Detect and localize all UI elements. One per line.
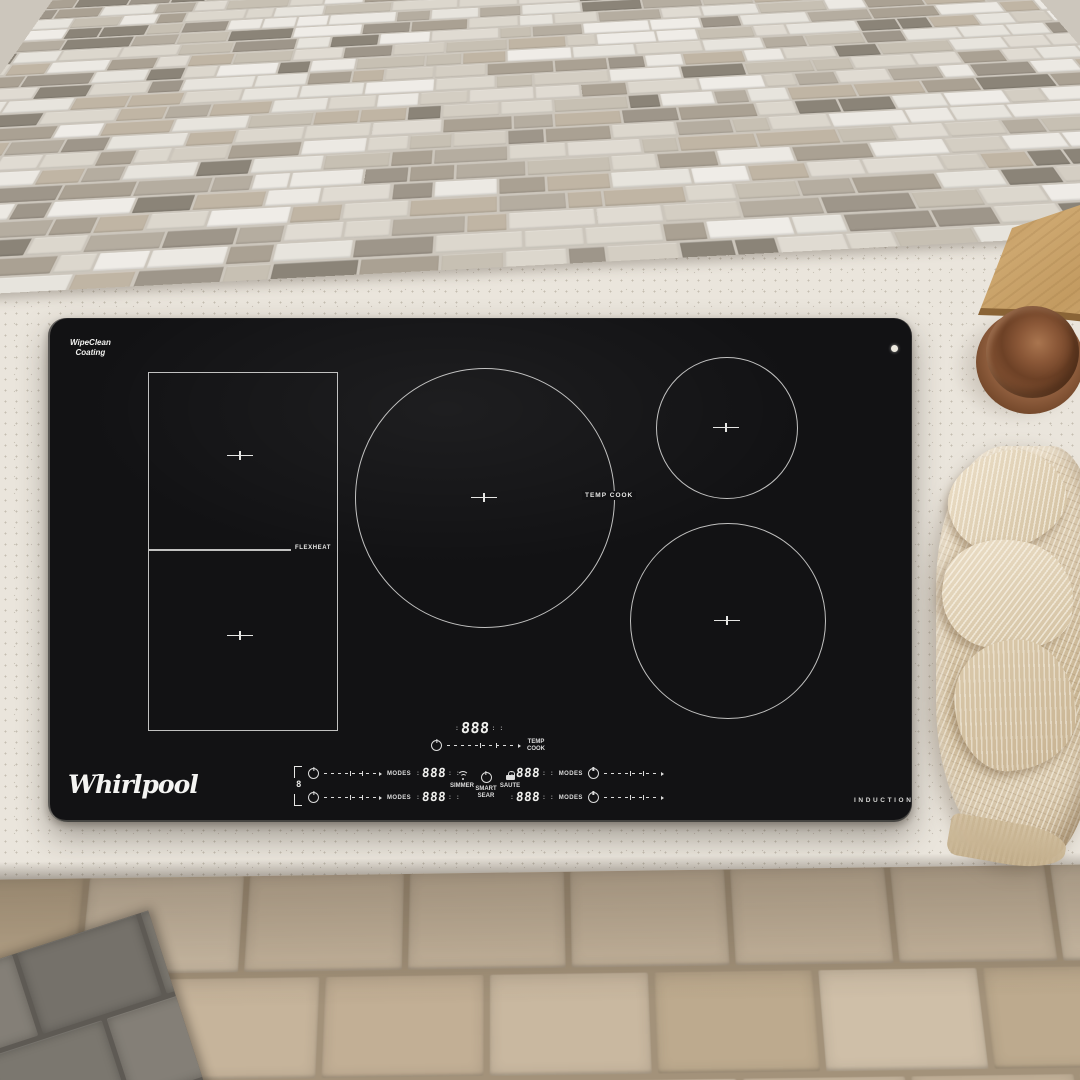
right-rear-burner-controls: : 888 : : MODES (510, 767, 664, 780)
led-display: 888 (515, 791, 540, 804)
display-mark: : : (542, 770, 554, 777)
tile (81, 166, 126, 182)
tile (957, 50, 1007, 63)
display-mark: : (416, 770, 420, 777)
display-mark: : (455, 725, 459, 732)
power-icon[interactable] (588, 792, 599, 803)
tile (717, 147, 795, 165)
tile (1001, 48, 1042, 61)
tile (377, 93, 419, 107)
tile (434, 179, 496, 197)
tile (210, 175, 253, 192)
tile (821, 192, 916, 213)
power-indicator-dot (891, 345, 898, 352)
led-display: 888 (421, 767, 446, 780)
button-label: SMART SEAR (475, 786, 496, 799)
tile (133, 177, 213, 196)
induction-cooktop: WipeClean Coating FLEXHEAT TEMP COOK : 8… (48, 318, 912, 822)
tile (367, 136, 408, 152)
tile (235, 225, 284, 244)
tile (165, 104, 211, 118)
tile (499, 192, 566, 211)
tile (93, 214, 149, 233)
tile (434, 146, 507, 164)
tile (290, 204, 343, 223)
tile (119, 14, 159, 25)
tile (944, 136, 1008, 153)
tile (185, 130, 236, 146)
tile (585, 224, 663, 245)
tile (289, 169, 364, 188)
tile (975, 13, 1016, 25)
tile (60, 137, 110, 153)
tile (502, 100, 553, 115)
modes-button[interactable]: MODES (387, 795, 411, 801)
tile (788, 84, 857, 100)
tile (343, 201, 409, 220)
bridge-display: 8 (296, 780, 301, 790)
tile (862, 156, 945, 175)
tile (426, 53, 461, 66)
tile (324, 152, 391, 170)
tile (546, 125, 612, 142)
tile (555, 110, 622, 126)
tile (442, 103, 499, 118)
tile (392, 182, 433, 199)
wooden-bowl (986, 306, 1079, 398)
tile (567, 34, 597, 46)
tile (656, 29, 698, 41)
tile (26, 235, 89, 255)
tile (1003, 35, 1053, 48)
tile (116, 106, 168, 121)
power-slider[interactable] (604, 793, 664, 802)
tile (912, 52, 962, 65)
tile (196, 159, 252, 176)
tile (870, 139, 950, 157)
tile (887, 66, 944, 80)
tile (250, 156, 324, 174)
badge-line2: Coating (70, 348, 111, 358)
tile (611, 169, 692, 188)
tile (795, 71, 839, 85)
tile (657, 151, 718, 168)
tile (454, 131, 506, 147)
burner-center-marker (714, 616, 740, 625)
display-mark: : : (492, 725, 504, 732)
flex-zone-divider (149, 549, 291, 551)
tile (928, 15, 980, 27)
tile (547, 173, 611, 191)
tile (194, 1, 228, 12)
tile (0, 256, 58, 277)
tile (581, 82, 627, 96)
tile (1005, 23, 1051, 35)
tile (343, 45, 392, 58)
flex-zone-outline (148, 372, 338, 731)
tile (1030, 59, 1080, 73)
tile (271, 98, 328, 113)
tile (146, 68, 186, 81)
tile (328, 95, 377, 110)
tile (791, 215, 847, 235)
tile (608, 56, 645, 69)
temp-cook-button[interactable]: TEMP COOK (526, 739, 546, 753)
tile (4, 139, 65, 155)
tile (145, 211, 209, 230)
tile (188, 53, 235, 66)
tile (468, 213, 507, 232)
tile (678, 133, 757, 151)
tile (603, 186, 686, 206)
tile (508, 129, 544, 144)
tile (706, 217, 794, 238)
tile (95, 150, 137, 166)
led-display: 888 (460, 721, 490, 736)
modes-button[interactable]: MODES (387, 771, 411, 777)
tile (252, 173, 291, 190)
tile (301, 138, 367, 155)
tile (970, 61, 1036, 76)
simmer-button[interactable]: SIMMER (452, 771, 472, 799)
tile (949, 37, 1009, 50)
led-display: 888 (421, 791, 446, 804)
tile (748, 163, 810, 181)
tile (35, 168, 86, 185)
tile (397, 10, 431, 21)
tile (743, 49, 785, 62)
tile (457, 161, 525, 179)
tile (93, 251, 151, 271)
tile (753, 25, 788, 37)
tile (768, 114, 832, 130)
tile (783, 46, 837, 59)
tile (596, 205, 663, 225)
burner-center-marker (713, 423, 739, 432)
burner-center-marker (227, 451, 253, 460)
tile (192, 191, 266, 210)
burner-display: : 888 : : (510, 791, 554, 804)
badge-line1: WipeClean (70, 338, 111, 348)
tile (661, 7, 702, 19)
tile (611, 154, 658, 171)
tile (0, 219, 53, 238)
left-front-burner-controls: MODES : 888 : : (308, 767, 460, 780)
tile (834, 44, 881, 57)
led-display: 888 (515, 767, 540, 780)
tile (304, 123, 371, 139)
tile (171, 116, 249, 133)
tile (980, 151, 1034, 168)
tile (944, 120, 1007, 136)
tile (359, 107, 406, 122)
tile (525, 228, 585, 248)
tile (156, 13, 186, 24)
tile (797, 178, 855, 196)
burner-display: : 888 : : (510, 767, 554, 780)
tile (950, 105, 1013, 121)
tile (132, 195, 195, 214)
power-slider[interactable] (604, 769, 664, 778)
tile (391, 150, 433, 166)
tile (364, 167, 408, 184)
tile (133, 148, 172, 164)
tile (892, 123, 949, 139)
tile (748, 88, 790, 102)
power-icon (481, 772, 492, 783)
burner-center-marker (471, 493, 497, 502)
tile (169, 145, 230, 162)
tile (536, 85, 581, 99)
wifi-icon (456, 771, 468, 780)
tile (161, 227, 237, 248)
tile (510, 143, 567, 160)
tile (53, 123, 105, 138)
tile (265, 188, 322, 206)
tile (353, 236, 434, 258)
tile (567, 139, 642, 157)
modes-button[interactable]: MODES (559, 771, 583, 777)
temp-cook-slider-row: TEMP COOK (431, 739, 546, 752)
tile (554, 12, 597, 24)
tile (58, 181, 137, 200)
tile (245, 8, 274, 19)
tile (794, 99, 841, 114)
button-label: SIMMER (450, 783, 474, 790)
tile (283, 222, 344, 242)
tile (700, 16, 741, 28)
tile (241, 86, 300, 101)
tile (38, 152, 99, 169)
tile (931, 207, 1001, 227)
tile (147, 247, 228, 269)
tile (837, 126, 897, 142)
display-mark: : (510, 770, 514, 777)
flex-bridge-indicator: 8 (294, 766, 305, 806)
tile (254, 73, 308, 87)
left-rear-burner-controls: MODES : 888 : : (308, 791, 460, 804)
right-front-burner-controls: : 888 : : MODES (510, 791, 664, 804)
tile (939, 64, 976, 77)
tile (732, 117, 771, 132)
tile (0, 185, 63, 204)
tile (939, 154, 987, 171)
brand-logo: Whirlpool (68, 770, 198, 799)
tile (837, 96, 896, 111)
tile (999, 0, 1040, 11)
power-icon[interactable] (308, 792, 319, 803)
tile (1010, 11, 1052, 23)
kitchen-scene: WipeClean Coating FLEXHEAT TEMP COOK : 8… (0, 0, 1080, 1080)
tile (1034, 0, 1073, 10)
tile (892, 93, 949, 108)
tile (296, 37, 331, 49)
tile (806, 160, 865, 178)
power-slider[interactable] (324, 793, 382, 802)
tile (6, 63, 51, 76)
power-slider[interactable] (324, 769, 382, 778)
tile (755, 101, 797, 116)
tile (262, 17, 297, 28)
display-mark: : (416, 794, 420, 801)
tile (1006, 101, 1080, 118)
display-mark: : : (542, 794, 554, 801)
tile (227, 19, 263, 30)
tile (419, 91, 467, 106)
temp-cook-control-group: : 888 : : TEMP COOK (431, 721, 546, 752)
tile (0, 170, 40, 187)
tile (835, 69, 891, 83)
power-icon[interactable] (588, 768, 599, 779)
tile (385, 67, 434, 81)
tile (480, 6, 521, 18)
tile (344, 219, 391, 238)
power-icon[interactable] (431, 740, 442, 751)
tile (520, 14, 553, 25)
tile (825, 0, 867, 10)
tile (660, 91, 715, 106)
tile (392, 216, 465, 236)
tile (183, 66, 218, 79)
tile (896, 17, 932, 29)
power-icon[interactable] (308, 768, 319, 779)
tile (52, 254, 98, 274)
tile (676, 119, 733, 135)
tile (763, 74, 797, 87)
tile (409, 134, 451, 150)
induction-label: INDUCTION (854, 797, 914, 804)
tile (273, 240, 353, 262)
tile (921, 78, 982, 93)
tile (714, 90, 749, 104)
tile (844, 210, 937, 231)
tile (1041, 84, 1080, 100)
tile (1002, 133, 1070, 150)
tile (500, 27, 531, 39)
tile (628, 94, 660, 108)
smart-sear-button[interactable]: SMART SEAR (476, 771, 496, 799)
tile (762, 35, 807, 48)
tile (122, 162, 199, 180)
tile (435, 64, 485, 78)
tile (155, 56, 190, 68)
tile (146, 23, 183, 34)
tile (435, 231, 522, 253)
tile (408, 106, 441, 120)
tile (235, 127, 305, 144)
tile (735, 180, 800, 199)
tile (207, 207, 291, 227)
tile (792, 143, 874, 161)
modes-button[interactable]: MODES (559, 795, 583, 801)
tile (1036, 46, 1080, 59)
burner-center-marker (227, 631, 253, 640)
tile (321, 184, 391, 203)
tile (63, 27, 102, 38)
tile (936, 170, 1007, 189)
tile (812, 58, 854, 71)
tile (410, 165, 455, 182)
tile (127, 92, 185, 107)
display-mark: : (510, 794, 514, 801)
tile (645, 54, 683, 67)
tile (48, 217, 98, 236)
tile (905, 108, 956, 123)
tile (444, 116, 512, 133)
tile (463, 51, 506, 64)
tile (84, 231, 165, 252)
tile (107, 57, 158, 70)
tile (862, 30, 906, 42)
coating-badge: WipeClean Coating (70, 338, 111, 357)
temp-cook-display: : 888 : : (455, 721, 546, 736)
tile (499, 176, 545, 194)
tile (310, 59, 356, 72)
tile (313, 110, 359, 125)
tile (352, 69, 384, 82)
tile (612, 122, 677, 139)
tile (1001, 118, 1047, 133)
tile (857, 19, 901, 31)
tile (297, 16, 329, 27)
tile (226, 244, 274, 264)
tile (957, 25, 1011, 38)
tile (568, 191, 603, 209)
tile (307, 71, 351, 84)
flex-zone-label: FLEXHEAT (295, 545, 331, 551)
tile (978, 186, 1049, 205)
tile (911, 189, 986, 209)
tile (514, 114, 553, 129)
tile (739, 197, 824, 217)
tile (1001, 167, 1064, 185)
tile (497, 74, 532, 87)
tile (410, 196, 497, 216)
tile (509, 209, 595, 230)
tile (148, 80, 184, 93)
tile (1004, 88, 1048, 102)
power-slider[interactable] (447, 741, 521, 750)
tile (622, 107, 679, 123)
tile (277, 61, 310, 74)
temp-cook-zone-label: TEMP COOK (582, 491, 636, 500)
tile (642, 137, 679, 153)
tile (555, 58, 608, 72)
tile (851, 173, 942, 193)
tile (691, 166, 750, 184)
tile (685, 184, 737, 202)
tile (663, 222, 708, 241)
tile (943, 90, 1010, 106)
tile (663, 201, 742, 221)
